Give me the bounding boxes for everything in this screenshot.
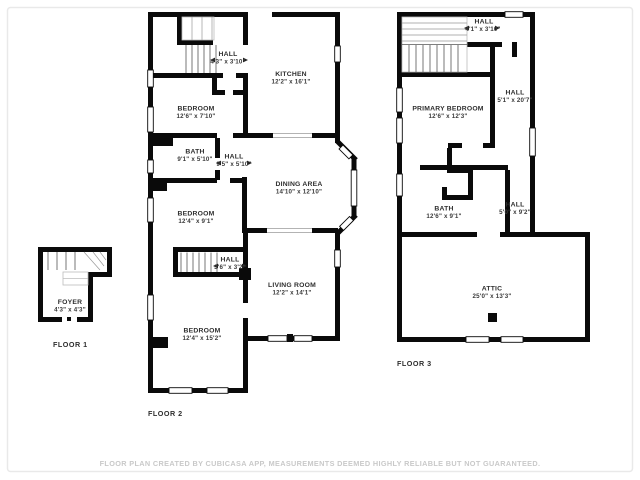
room-dims-bedroom-top: 12'6" x 7'10"	[177, 113, 216, 120]
room-label-hall-top-f3: HALL	[475, 19, 494, 26]
floor-3-plan: HALL 4'1" x 3'10" PRIMARY BEDROOM 12'6" …	[397, 12, 590, 368]
room-label-bedroom-top: BEDROOM	[178, 106, 215, 113]
floor-2-walls	[148, 12, 357, 393]
room-dims-hall-bottom: 3'6" x 3'2"	[214, 264, 246, 271]
room-dims-primary-bedroom: 12'6" x 12'3"	[429, 113, 468, 120]
room-dims-bath-f3: 12'6" x 9'1"	[426, 213, 461, 220]
room-dims-hall-mid: 9'5" x 5'10"	[216, 161, 251, 168]
room-label-dining: DINING AREA	[276, 181, 323, 188]
room-label-bath: BATH	[185, 149, 204, 156]
room-dims-hall-top: 4'3" x 3'10"	[210, 59, 245, 66]
room-label-attic: ATTIC	[482, 286, 503, 293]
floor-1-label: FLOOR 1	[53, 340, 88, 349]
floor-1-plan: FOYER 4'3" x 4'3" FLOOR 1	[38, 247, 112, 349]
room-dims-attic: 25'0" x 13'3"	[473, 293, 512, 300]
floor-2-label: FLOOR 2	[148, 409, 183, 418]
room-label-living: LIVING ROOM	[268, 282, 316, 289]
room-dims-kitchen: 12'2" x 16'1"	[272, 79, 311, 86]
room-dims-hall-right: 5'1" x 20'7"	[497, 97, 532, 104]
floor-3-windows	[397, 12, 536, 343]
floor-1-stairs	[48, 252, 106, 285]
floor-3-stairs	[402, 17, 467, 72]
room-label-bedroom-bottom: BEDROOM	[184, 328, 221, 335]
room-dims-bedroom-bottom: 12'4" x 15'2"	[183, 335, 222, 342]
room-dims-bath: 9'1" x 5'10"	[177, 156, 212, 163]
room-label-primary-bedroom: PRIMARY BEDROOM	[412, 106, 483, 113]
room-label-hall-mid: HALL	[225, 154, 244, 161]
footer-disclaimer: FLOOR PLAN CREATED BY CUBICASA APP, MEAS…	[100, 459, 541, 468]
room-dims-foyer: 4'3" x 4'3"	[54, 307, 86, 314]
room-label-bath-f3: BATH	[434, 206, 453, 213]
room-dims-hall-top-f3: 4'1" x 3'10"	[465, 26, 500, 33]
room-dims-living: 12'2" x 14'1"	[273, 290, 312, 297]
page-border-frame	[8, 8, 633, 472]
room-label-bedroom-mid: BEDROOM	[178, 211, 215, 218]
floor-3-label: FLOOR 3	[397, 359, 432, 368]
room-label-hall-lower: HALL	[506, 202, 525, 209]
room-dims-bedroom-mid: 12'4" x 9'1"	[178, 218, 213, 225]
room-label-foyer: FOYER	[58, 299, 82, 306]
room-dims-hall-lower: 5'0" x 9'2"	[499, 209, 531, 216]
floor-2-stairs	[181, 17, 217, 272]
room-label-hall-top: HALL	[219, 51, 238, 58]
room-dims-dining: 14'10" x 12'10"	[276, 189, 322, 196]
floor-2-plan: HALL 4'3" x 3'10" KITCHEN 12'2" x 16'1" …	[148, 12, 357, 418]
room-label-kitchen: KITCHEN	[275, 71, 307, 78]
floor-plan-page: FOYER 4'3" x 4'3" FLOOR 1	[0, 0, 640, 480]
floor-plan-canvas: FOYER 4'3" x 4'3" FLOOR 1	[0, 0, 640, 480]
room-label-hall-right: HALL	[506, 90, 525, 97]
room-label-hall-bottom: HALL	[221, 257, 240, 264]
